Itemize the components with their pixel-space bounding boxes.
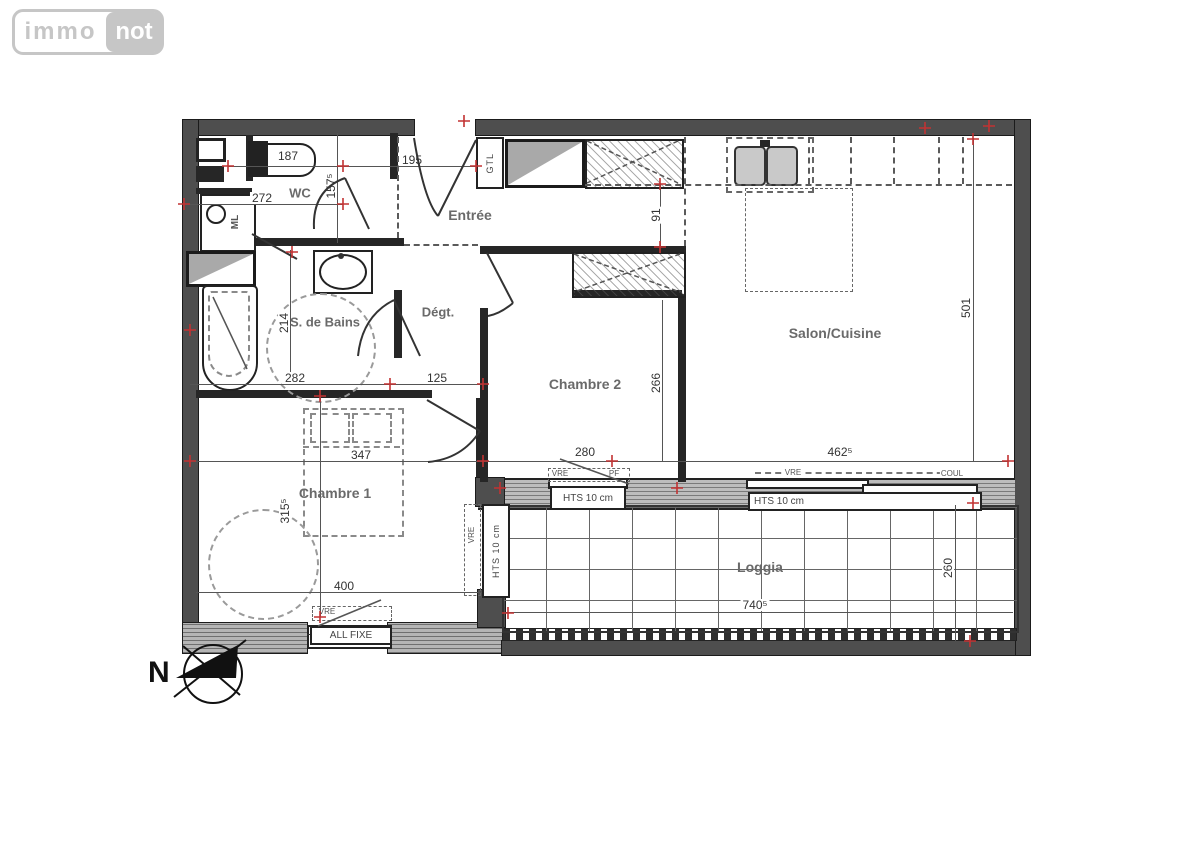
window-glazing-triangle — [189, 254, 253, 284]
wall-loggia-bottom — [502, 641, 1015, 655]
dim-125: 125 — [425, 372, 449, 384]
logo-text-not: not — [106, 12, 162, 52]
bains-window — [186, 251, 256, 287]
dashed-degt-top — [404, 244, 478, 246]
wall-corner-block — [476, 478, 504, 506]
wall-bottom-b — [388, 623, 504, 653]
toilet-tank — [248, 141, 268, 177]
all-fixe-box: ALL FIXE — [310, 626, 392, 645]
dim-272: 272 — [250, 192, 274, 204]
dim-266: 266 — [650, 371, 662, 395]
wall-top-left — [183, 120, 414, 135]
dim-282: 282 — [283, 372, 307, 384]
wall-chambre2-left — [480, 308, 488, 482]
dim-501: 501 — [960, 296, 972, 320]
wall-wc-bottom — [254, 238, 404, 246]
dim-line — [505, 612, 1013, 613]
washing-machine-label: ML — [231, 214, 241, 230]
dashed-wc-entree — [397, 137, 399, 238]
hts-box-salon: HTS 10 cm — [748, 492, 982, 511]
room-label-chambre1: Chambre 1 — [299, 485, 371, 501]
dim-280: 280 — [573, 446, 597, 458]
wall-bains-right — [394, 290, 402, 358]
dim-740: 740⁵ — [741, 599, 770, 611]
dim-347: 347 — [349, 449, 373, 461]
dim-157: 157⁵ — [325, 172, 337, 201]
floorplan-canvas: immo not ML — [0, 0, 1200, 848]
bed-pillow-right — [352, 413, 392, 443]
chambre2-door — [487, 253, 513, 316]
hts-box-chambre2: HTS 10 cm — [550, 486, 626, 510]
dim-400: 400 — [332, 580, 356, 592]
entree-window — [505, 139, 585, 188]
kitchen-sink-right — [766, 146, 798, 186]
washing-machine-box — [200, 194, 256, 252]
turning-circle-bains — [266, 293, 376, 403]
dashed-counter-2 — [850, 137, 852, 184]
gtl-label: GTL — [485, 153, 495, 174]
dim-315: 315⁵ — [279, 497, 291, 526]
vre-strip-chambre1 — [464, 504, 481, 596]
entry-door — [414, 138, 476, 216]
dim-line — [228, 166, 476, 167]
duct-box-b — [196, 166, 224, 182]
hts-label: HTS 10 cm — [563, 493, 613, 504]
dashed-counter-edge — [585, 184, 1012, 186]
room-label-bains: S. de Bains — [290, 315, 360, 330]
room-label-entree: Entrée — [448, 207, 492, 223]
dim-91: 91 — [650, 206, 662, 223]
logo-text-immo: immo — [15, 20, 106, 44]
dim-187: 187 — [276, 150, 300, 162]
dim-line — [955, 505, 956, 641]
placard-entree — [585, 139, 684, 189]
kitchen-faucet — [760, 140, 770, 147]
washing-machine-drum — [206, 204, 226, 224]
wall-chambre2-right — [678, 294, 686, 482]
immonot-logo[interactable]: immo not — [12, 9, 164, 55]
pf-label-chambre2: PF — [608, 470, 620, 478]
dashed-entree-salon — [684, 137, 686, 246]
dim-195: 195 — [400, 154, 424, 166]
dim-line — [190, 461, 1008, 462]
room-label-salon: Salon/Cuisine — [789, 325, 882, 341]
hts-label: HTS 10 cm — [754, 496, 804, 507]
dim-line — [320, 395, 321, 617]
hts-box-chambre1: HTS 10 cm — [482, 504, 510, 598]
dashed-counter-4 — [938, 137, 940, 184]
room-label-chambre2: Chambre 2 — [549, 376, 621, 392]
washbasin-bowl — [319, 254, 367, 290]
wall-bottom-a — [183, 623, 307, 653]
vre-label-chambre2: VRE — [551, 470, 569, 478]
dim-214: 214 — [278, 311, 290, 335]
room-label-wc: WC — [289, 186, 311, 201]
window-glazing-triangle — [508, 142, 582, 185]
kitchen-sink-left — [734, 146, 766, 186]
vre-label-bay: VRE — [784, 469, 802, 477]
chambre1-door — [427, 400, 480, 462]
duct-box-a — [196, 138, 226, 162]
wall-top-right — [476, 120, 1030, 135]
dim-462: 462⁵ — [826, 446, 855, 458]
coul-label-bay: COUL — [940, 470, 964, 478]
dashed-counter-3 — [893, 137, 895, 184]
dashed-counter-1 — [808, 137, 810, 184]
turning-circle-chambre1 — [208, 509, 319, 620]
dim-line — [973, 138, 974, 461]
north-label: N — [148, 656, 170, 690]
placard-chambre2 — [572, 252, 686, 298]
all-fixe-label: ALL FIXE — [330, 630, 372, 641]
gtl-box: GTL — [476, 137, 504, 189]
dim-260: 260 — [942, 556, 954, 580]
bed-pillow-left — [310, 413, 350, 443]
bathtub-inner — [208, 291, 250, 377]
bay-panel-left — [746, 479, 869, 489]
hts-label: HTS 10 cm — [491, 524, 501, 578]
wall-left — [183, 120, 198, 653]
vre-label-chambre1: VRE — [468, 526, 476, 544]
room-label-degagement: Dégt. — [422, 305, 455, 320]
room-label-loggia: Loggia — [737, 559, 783, 575]
dashed-counter-5 — [962, 137, 964, 184]
kitchen-island-zone — [745, 188, 853, 292]
